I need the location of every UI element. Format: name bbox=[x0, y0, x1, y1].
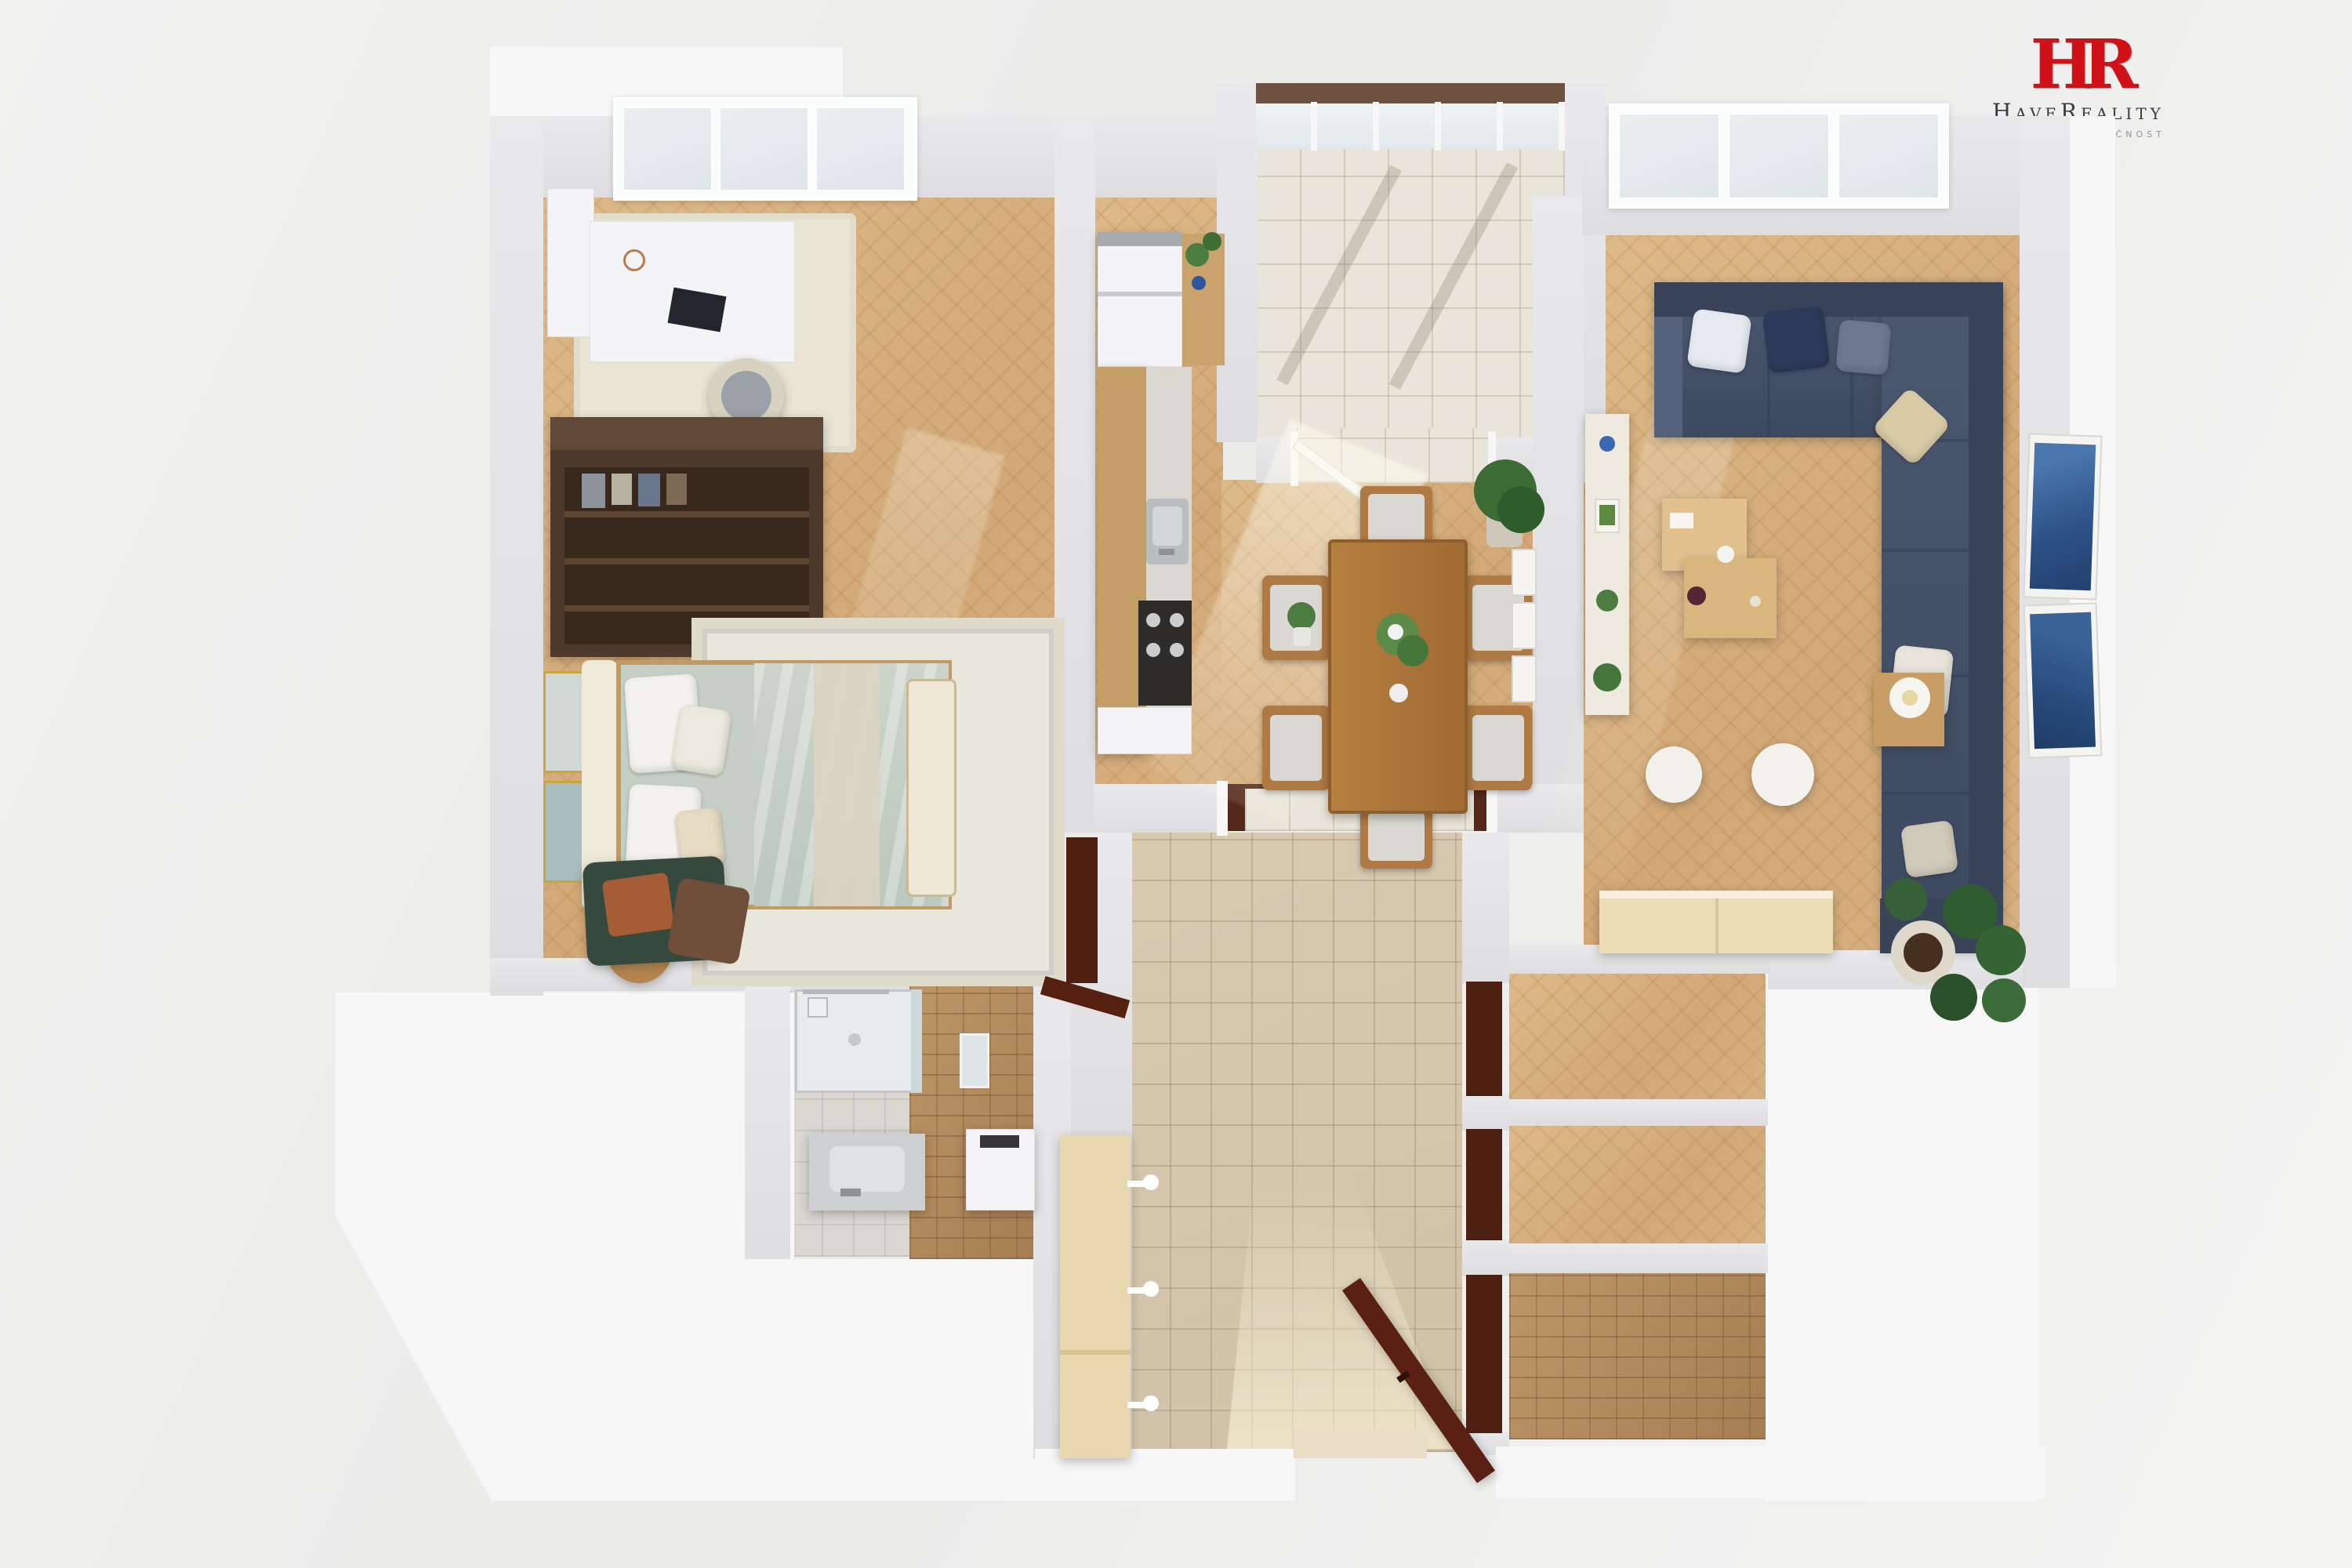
wall-frame bbox=[1512, 655, 1537, 702]
washer-panel bbox=[980, 1135, 1019, 1148]
sideboard-top bbox=[1599, 891, 1833, 898]
hall-wardrobe bbox=[1060, 1135, 1131, 1458]
skylight-pane bbox=[1838, 113, 1940, 199]
skylight-pane bbox=[719, 107, 809, 191]
hall-wardrobe-divider bbox=[1060, 1350, 1131, 1355]
plate bbox=[1717, 546, 1734, 563]
wall-frame bbox=[1512, 602, 1537, 649]
wall-art-canvas bbox=[2030, 443, 2096, 591]
clothes bbox=[612, 474, 632, 505]
bedroom-door bbox=[1066, 837, 1098, 983]
bed-pillow bbox=[671, 703, 732, 776]
sofa-pillow bbox=[1762, 306, 1831, 374]
burner bbox=[1170, 643, 1184, 657]
small-plant-pot bbox=[1294, 627, 1311, 646]
shower-bar bbox=[803, 989, 889, 994]
fridge-steel bbox=[1098, 232, 1182, 246]
plant-leaves bbox=[1982, 978, 2026, 1022]
skylight-pane bbox=[1618, 113, 1720, 199]
balcony-glass bbox=[1256, 103, 1568, 149]
skylight-pane bbox=[1728, 113, 1830, 199]
skylight-pane bbox=[622, 107, 713, 191]
book bbox=[1670, 513, 1693, 528]
entry-step bbox=[1294, 1430, 1427, 1458]
sofa-back bbox=[1969, 282, 2003, 950]
balcony-post bbox=[1497, 102, 1503, 151]
wall-hall-right-pillar bbox=[1462, 1094, 1509, 1131]
wall-art-canvas bbox=[2030, 612, 2096, 750]
closet2-floor bbox=[1509, 1126, 1768, 1243]
wall-hall-bottom-right bbox=[1496, 1446, 2045, 1498]
vanity-basin bbox=[829, 1146, 905, 1192]
balcony-post bbox=[1311, 102, 1317, 151]
centerpiece-plant bbox=[1397, 635, 1428, 666]
plant-leaves bbox=[1976, 925, 2026, 975]
bed-throw bbox=[814, 663, 880, 906]
table-plate bbox=[1389, 684, 1408, 702]
coat-hook-knob bbox=[1143, 1281, 1159, 1297]
floor-plan-render: HR HaveReality REALITNÍ SPOLEČNOST bbox=[0, 0, 2352, 1568]
wall-hall-right-pillar bbox=[1462, 833, 1509, 983]
coat-hook-knob bbox=[1143, 1174, 1159, 1190]
candle bbox=[1750, 596, 1761, 607]
wardrobe-shelf bbox=[564, 511, 809, 517]
chair-cushion bbox=[1472, 715, 1524, 781]
balcony-post bbox=[1559, 102, 1565, 151]
balcony-post bbox=[1435, 102, 1441, 151]
counter-end bbox=[1098, 707, 1192, 754]
wardrobe-top bbox=[550, 417, 823, 450]
console-plant bbox=[1596, 590, 1618, 612]
closet1-floor bbox=[1509, 972, 1768, 1099]
chair-cushion bbox=[1368, 494, 1425, 543]
console-vase bbox=[1599, 436, 1615, 452]
sofa-pillow bbox=[1686, 308, 1752, 374]
closet2-door bbox=[1466, 1129, 1502, 1240]
small-plant bbox=[1287, 602, 1316, 630]
chair-cushion bbox=[1368, 812, 1425, 861]
coat-hook-knob bbox=[1143, 1396, 1159, 1411]
clothes bbox=[666, 474, 687, 505]
pouf bbox=[1646, 746, 1702, 803]
burner bbox=[1170, 613, 1184, 627]
bed-bench bbox=[906, 679, 956, 897]
faucet bbox=[1159, 549, 1174, 555]
fridge bbox=[1098, 232, 1182, 367]
sofa-seam bbox=[1882, 792, 1969, 795]
chair-cushion bbox=[1270, 715, 1322, 781]
sofa-armrest bbox=[1654, 317, 1682, 437]
vanity-faucet bbox=[840, 1189, 861, 1196]
wall-closet-divider bbox=[1509, 1243, 1768, 1273]
wall-frame bbox=[1512, 549, 1537, 596]
sink-basin bbox=[1152, 506, 1182, 546]
plant-leaves bbox=[1885, 878, 1927, 920]
balcony-post bbox=[1373, 102, 1379, 151]
outer-wall-face-left bbox=[336, 993, 794, 1501]
plant-leaves bbox=[1930, 974, 1977, 1021]
skylight-pane bbox=[815, 107, 906, 191]
outer-wall-face-right bbox=[1766, 966, 2038, 1501]
clothes bbox=[582, 474, 605, 508]
pouf bbox=[1751, 743, 1814, 806]
balcony-floor bbox=[1256, 149, 1568, 441]
console-moss bbox=[1599, 505, 1615, 525]
shower-glass bbox=[911, 989, 922, 1093]
office-chair-cushion bbox=[721, 371, 771, 421]
bowl-berries bbox=[1687, 586, 1706, 605]
armchair-pillow bbox=[601, 873, 674, 938]
shower-drain bbox=[848, 1033, 861, 1046]
wall-bedroom-left bbox=[490, 116, 543, 996]
shower-head bbox=[808, 997, 828, 1018]
sofa-pillow bbox=[1900, 820, 1959, 879]
fridge-line bbox=[1098, 292, 1182, 296]
burner bbox=[1146, 643, 1160, 657]
kitchen-pot bbox=[1192, 276, 1206, 290]
bath-stone-wall bbox=[909, 986, 1033, 1259]
wc-floor bbox=[1509, 1273, 1768, 1439]
bath-mirror bbox=[960, 1033, 989, 1088]
wall-closet-divider bbox=[1509, 1099, 1768, 1126]
wardrobe-shelf bbox=[564, 605, 809, 612]
dining-table bbox=[1328, 539, 1468, 814]
wall-bath-left bbox=[745, 986, 790, 1259]
wall-hall-right-pillar bbox=[1462, 1239, 1509, 1276]
closet1-door bbox=[1466, 982, 1502, 1096]
sofa-pillow bbox=[1835, 319, 1892, 376]
sofa-seam bbox=[1882, 549, 1969, 552]
kitchen-plant bbox=[1203, 232, 1221, 251]
logo-monogram-icon: HR bbox=[1988, 33, 2169, 97]
sideboard-divider bbox=[1715, 891, 1719, 953]
outer-wall-face-bottom bbox=[790, 1259, 1035, 1501]
clothes bbox=[638, 474, 660, 506]
burner bbox=[1146, 613, 1160, 627]
wardrobe-shelf bbox=[564, 558, 809, 564]
desk-shelf bbox=[547, 188, 594, 337]
balcony-rail bbox=[1256, 83, 1568, 103]
floor-lamp-glow bbox=[1902, 690, 1918, 706]
desk-basket bbox=[623, 249, 645, 271]
console-plant bbox=[1593, 663, 1621, 691]
wc-door bbox=[1466, 1275, 1502, 1433]
plant-soil bbox=[1904, 933, 1943, 972]
dining-plant bbox=[1497, 486, 1544, 533]
armchair-throw bbox=[666, 877, 751, 965]
centerpiece-vase bbox=[1388, 624, 1403, 640]
